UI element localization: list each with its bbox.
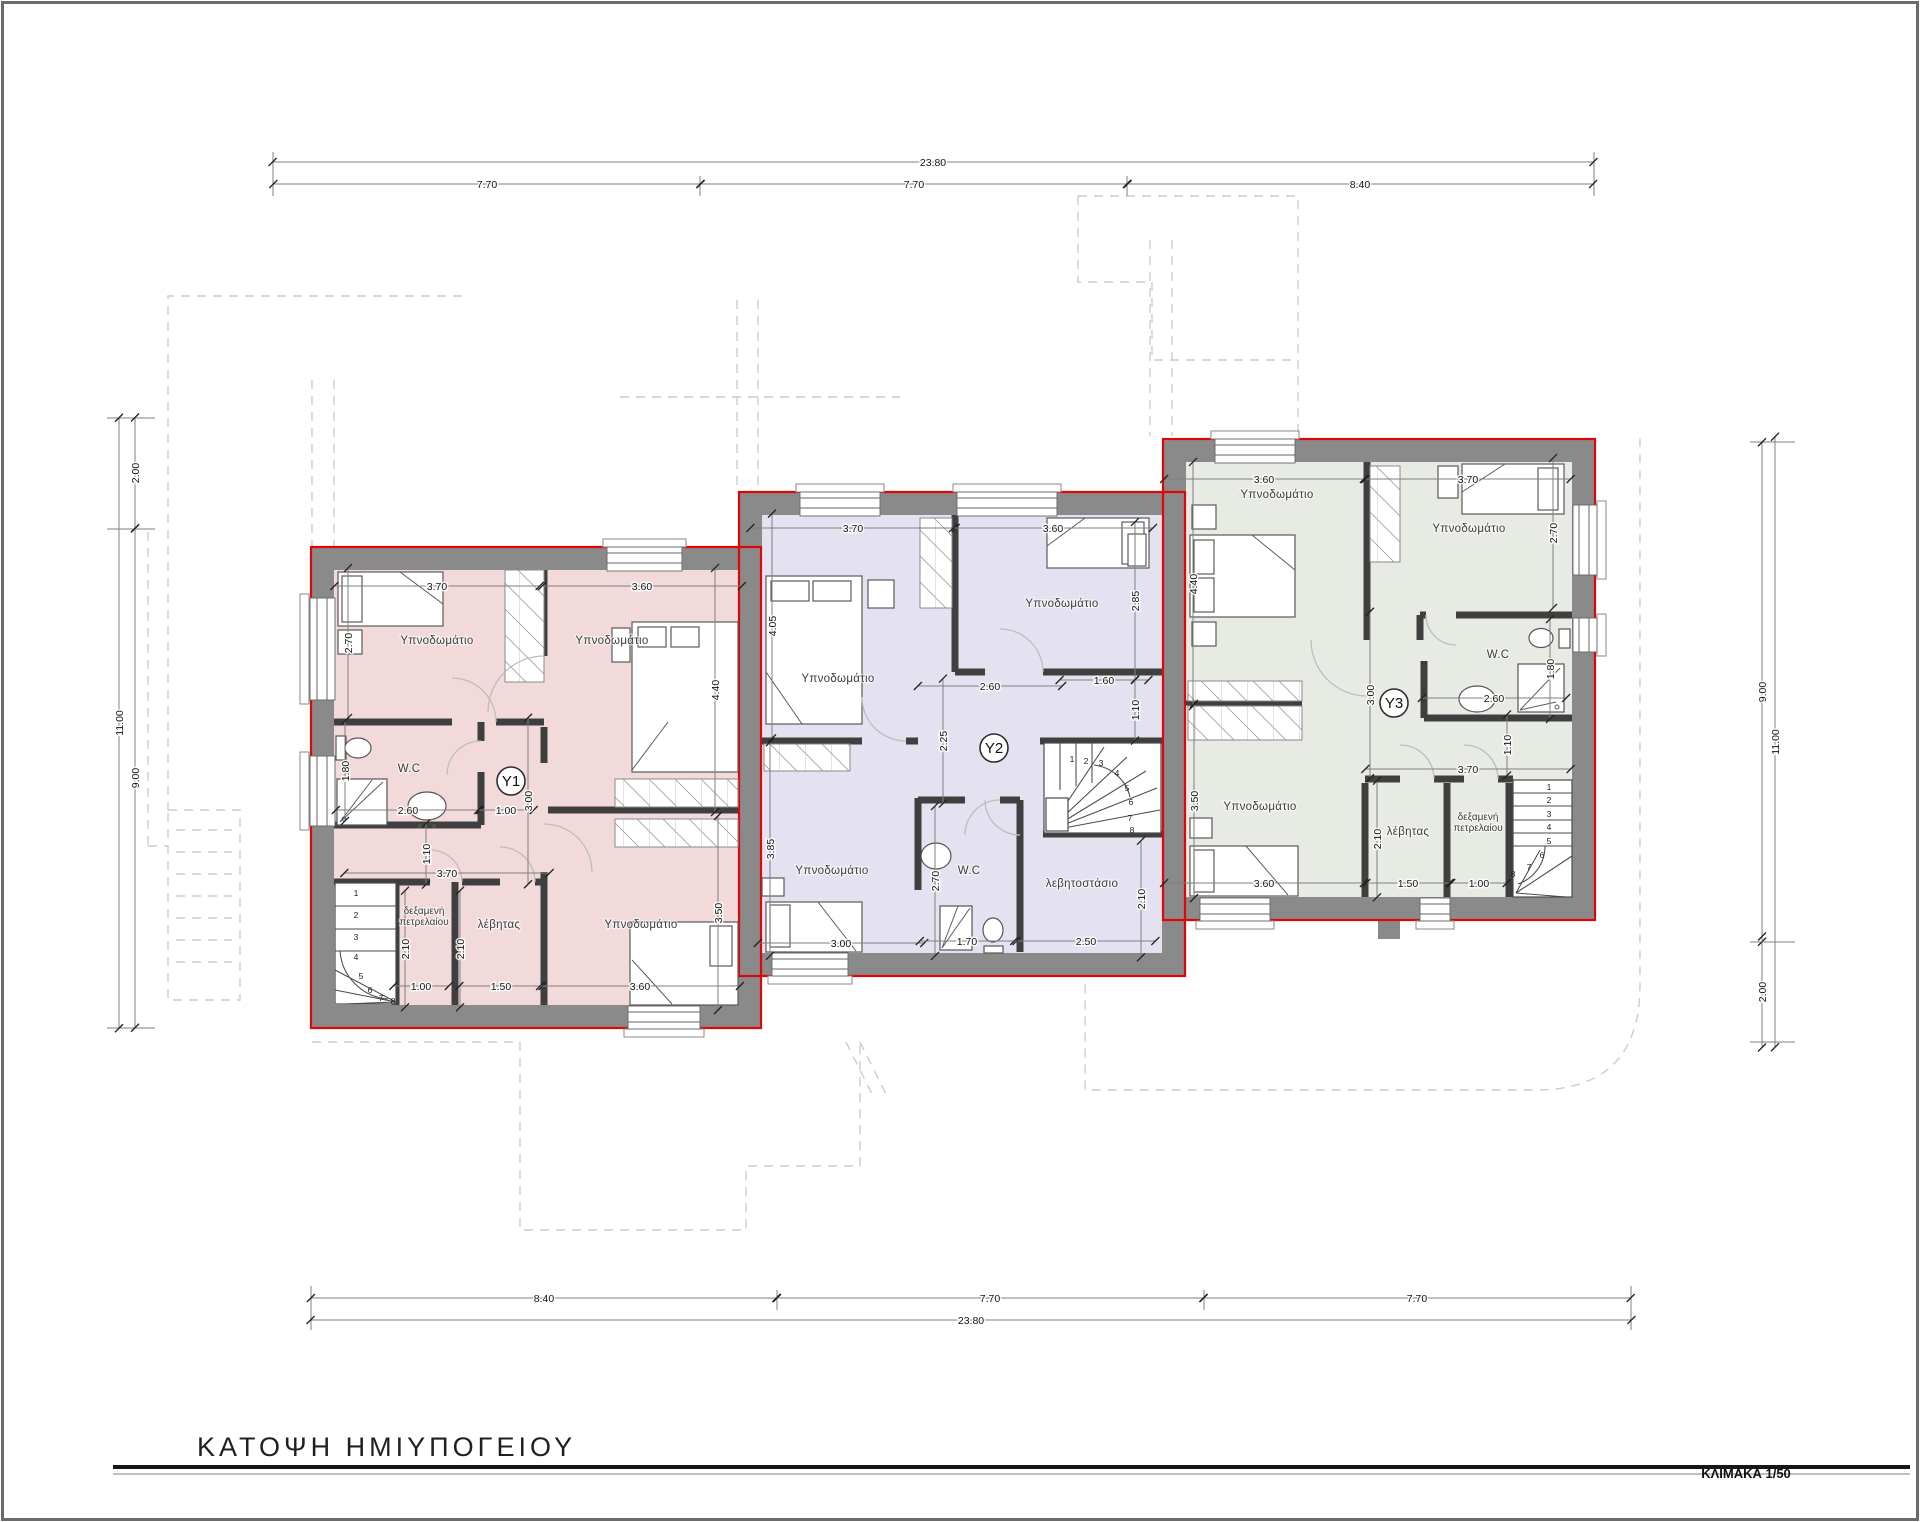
dim-label: 8.40 xyxy=(1350,179,1371,191)
nightstand xyxy=(1438,466,1458,498)
dim-label: 1.50 xyxy=(1398,878,1419,890)
dim-label: 2.10 xyxy=(1372,829,1384,850)
room-label: λεβητοστάσιο xyxy=(1046,878,1118,890)
dim-label: 3.50 xyxy=(1189,791,1201,812)
dim-label: 3.85 xyxy=(765,839,777,860)
step-number: 5 xyxy=(1547,836,1552,846)
pillow xyxy=(771,581,809,601)
dim-label: 7.70 xyxy=(1407,1293,1428,1305)
nightstand xyxy=(762,878,784,896)
room-label: Υπνοδωμάτιο xyxy=(795,865,868,877)
room-label: Υπνοδωμάτιο xyxy=(400,635,473,647)
window xyxy=(1196,898,1274,929)
dim-label: 11.00 xyxy=(114,710,126,736)
step-number: 8 xyxy=(1130,825,1135,835)
room-label: Υπνοδωμάτιο xyxy=(1432,523,1505,535)
step-number: 3 xyxy=(1547,809,1552,819)
room-label: Υπνοδωμάτιο xyxy=(1025,598,1098,610)
step-number: 8 xyxy=(391,996,396,1006)
nightstand xyxy=(868,580,894,608)
room-label: Υπνοδωμάτιο xyxy=(1223,801,1296,813)
step-number: 2 xyxy=(1084,756,1089,766)
dim-label: 2.60 xyxy=(980,681,1001,693)
step-number: 6 xyxy=(368,985,373,995)
toilet-tank xyxy=(984,946,1003,953)
step-number: 6 xyxy=(1540,850,1545,860)
step-number: 3 xyxy=(354,932,359,942)
window xyxy=(624,1006,704,1037)
room-label: W.C xyxy=(958,865,981,877)
window xyxy=(796,484,884,516)
step-number: 7 xyxy=(1128,813,1133,823)
dim-label: 1.00 xyxy=(496,805,517,817)
sink xyxy=(921,843,951,869)
step-number: 4 xyxy=(354,952,359,962)
step-number: 8 xyxy=(1511,869,1516,879)
dim-label: 3.00 xyxy=(831,938,852,950)
dim-label: 7.70 xyxy=(980,1293,1001,1305)
floor-plan-canvas: 23.807.707.708.408.407.707.7023.8011.002… xyxy=(0,0,1920,1522)
window xyxy=(953,484,1061,516)
pillow xyxy=(342,576,362,622)
pillow xyxy=(1538,468,1558,510)
nightstand xyxy=(1190,818,1212,838)
step-number: 1 xyxy=(354,888,359,898)
dim-label: 7.70 xyxy=(904,179,925,191)
dim-label: 2.00 xyxy=(130,463,142,484)
dim-label: 4.40 xyxy=(710,680,722,701)
nightstand xyxy=(1192,622,1216,646)
dim-label: 1.00 xyxy=(1469,878,1490,890)
toilet-tank xyxy=(1559,629,1570,648)
dim-label: 3.60 xyxy=(632,581,653,593)
window xyxy=(768,953,852,984)
room-label: Υπνοδωμάτιο xyxy=(801,673,874,685)
pillow xyxy=(1194,850,1214,892)
dim-label: 1.10 xyxy=(1502,735,1514,756)
dim-label: 3.60 xyxy=(630,981,651,993)
dim-label: 23.80 xyxy=(958,1315,984,1327)
step-number: 7 xyxy=(379,993,384,1003)
pillow xyxy=(770,905,790,947)
step-number: 5 xyxy=(1125,783,1130,793)
room-label: λέβητας xyxy=(478,919,521,931)
staircase-y3 xyxy=(1513,780,1572,897)
dim-label: 3.60 xyxy=(1043,523,1064,535)
dim-label: 2.60 xyxy=(398,805,419,817)
dim-label: 4.05 xyxy=(767,616,779,637)
dim-label: 2.50 xyxy=(1076,936,1097,948)
dim-label: 8.40 xyxy=(534,1293,555,1305)
step-number: 6 xyxy=(1129,797,1134,807)
dim-label: 1.60 xyxy=(1094,675,1115,687)
window xyxy=(603,539,686,571)
dim-label: 2.10 xyxy=(1136,889,1148,910)
room-label: W.C xyxy=(398,763,421,775)
drawing-title: ΚΑΤΟΨΗ ΗΜΙΥΠΟΓΕΙΟΥ xyxy=(197,1432,576,1462)
dim-label: 2.60 xyxy=(1484,693,1505,705)
wall-stub xyxy=(1378,919,1400,939)
step-number: 2 xyxy=(354,910,359,920)
window xyxy=(1416,898,1454,929)
dim-label: 2.10 xyxy=(455,939,467,960)
dim-label: 2.10 xyxy=(400,939,412,960)
nightstand xyxy=(1128,534,1146,566)
dim-label: 3.70 xyxy=(437,868,458,880)
dim-label: 2.25 xyxy=(938,731,950,752)
scale-label: ΚΛΙΜΑΚΑ 1/50 xyxy=(1701,1466,1791,1481)
dim-label: 1.00 xyxy=(411,981,432,993)
room-label: δεξαμενήπετρελαίου xyxy=(1453,811,1502,834)
pillow xyxy=(710,926,732,966)
dim-label: 2.70 xyxy=(1548,523,1560,544)
dim-label: 1.70 xyxy=(957,936,978,948)
window xyxy=(1211,431,1299,463)
window xyxy=(300,752,335,830)
staircase-y1 xyxy=(335,883,396,1004)
toilet xyxy=(1529,629,1553,648)
step-number: 3 xyxy=(1099,758,1104,768)
step-number: 7 xyxy=(1527,862,1532,872)
dim-label: 4.40 xyxy=(1188,574,1200,595)
toilet xyxy=(983,918,1003,942)
dim-label: 1.80 xyxy=(1545,659,1557,680)
step-number: 2 xyxy=(1547,795,1552,805)
window xyxy=(1573,614,1606,656)
room-label: Υπνοδωμάτιο xyxy=(575,635,648,647)
step-number: 5 xyxy=(359,971,364,981)
nightstand xyxy=(1192,505,1216,529)
pillow xyxy=(1194,540,1214,574)
dim-label: 3.00 xyxy=(523,791,535,812)
dim-label: 1.10 xyxy=(421,844,433,865)
dim-label: 1.80 xyxy=(340,761,352,782)
dim-label: 3.70 xyxy=(1458,764,1479,776)
dim-label: 1.50 xyxy=(491,981,512,993)
dim-label: 3.60 xyxy=(1254,474,1275,486)
room-label: δεξαμενήπετρελαίου xyxy=(399,905,448,928)
dim-label: 9.00 xyxy=(130,768,142,789)
dim-label: 3.60 xyxy=(1254,878,1275,890)
dim-label: 3.70 xyxy=(1458,474,1479,486)
step-number: 4 xyxy=(1547,822,1552,832)
room-label: W.C xyxy=(1487,649,1510,661)
dim-label: 3.00 xyxy=(1365,685,1377,706)
toilet xyxy=(345,738,371,758)
unit-badge: Y3 xyxy=(1385,695,1403,712)
staircase-y2 xyxy=(1044,743,1161,833)
pillow xyxy=(671,627,699,647)
step-number: 1 xyxy=(1547,782,1552,792)
dim-label: 1.10 xyxy=(1130,700,1142,721)
step-number: 4 xyxy=(1115,768,1120,778)
room-label: λέβητας xyxy=(1387,826,1430,838)
window xyxy=(1573,501,1606,579)
dim-label: 9.00 xyxy=(1757,682,1769,703)
room-label: Υπνοδωμάτιο xyxy=(1240,489,1313,501)
dim-label: 2.70 xyxy=(930,871,942,892)
dim-label: 2.85 xyxy=(1130,591,1142,612)
dim-label: 2.70 xyxy=(343,633,355,654)
window xyxy=(300,594,335,704)
room-label: Υπνοδωμάτιο xyxy=(604,919,677,931)
dim-label: 3.50 xyxy=(713,903,725,924)
dim-label: 2.00 xyxy=(1757,982,1769,1003)
dim-label: 7.70 xyxy=(477,179,498,191)
unit-badge: Y2 xyxy=(985,740,1003,757)
dim-label: 23.80 xyxy=(920,157,946,169)
drawing-sheet: 23.807.707.708.408.407.707.7023.8011.002… xyxy=(0,0,1920,1522)
unit-badge: Y1 xyxy=(502,773,520,790)
pillow xyxy=(813,581,851,601)
step-number: 1 xyxy=(1070,754,1075,764)
dim-label: 11.00 xyxy=(1770,729,1782,755)
dim-label: 3.70 xyxy=(427,581,448,593)
dim-label: 3.70 xyxy=(843,523,864,535)
